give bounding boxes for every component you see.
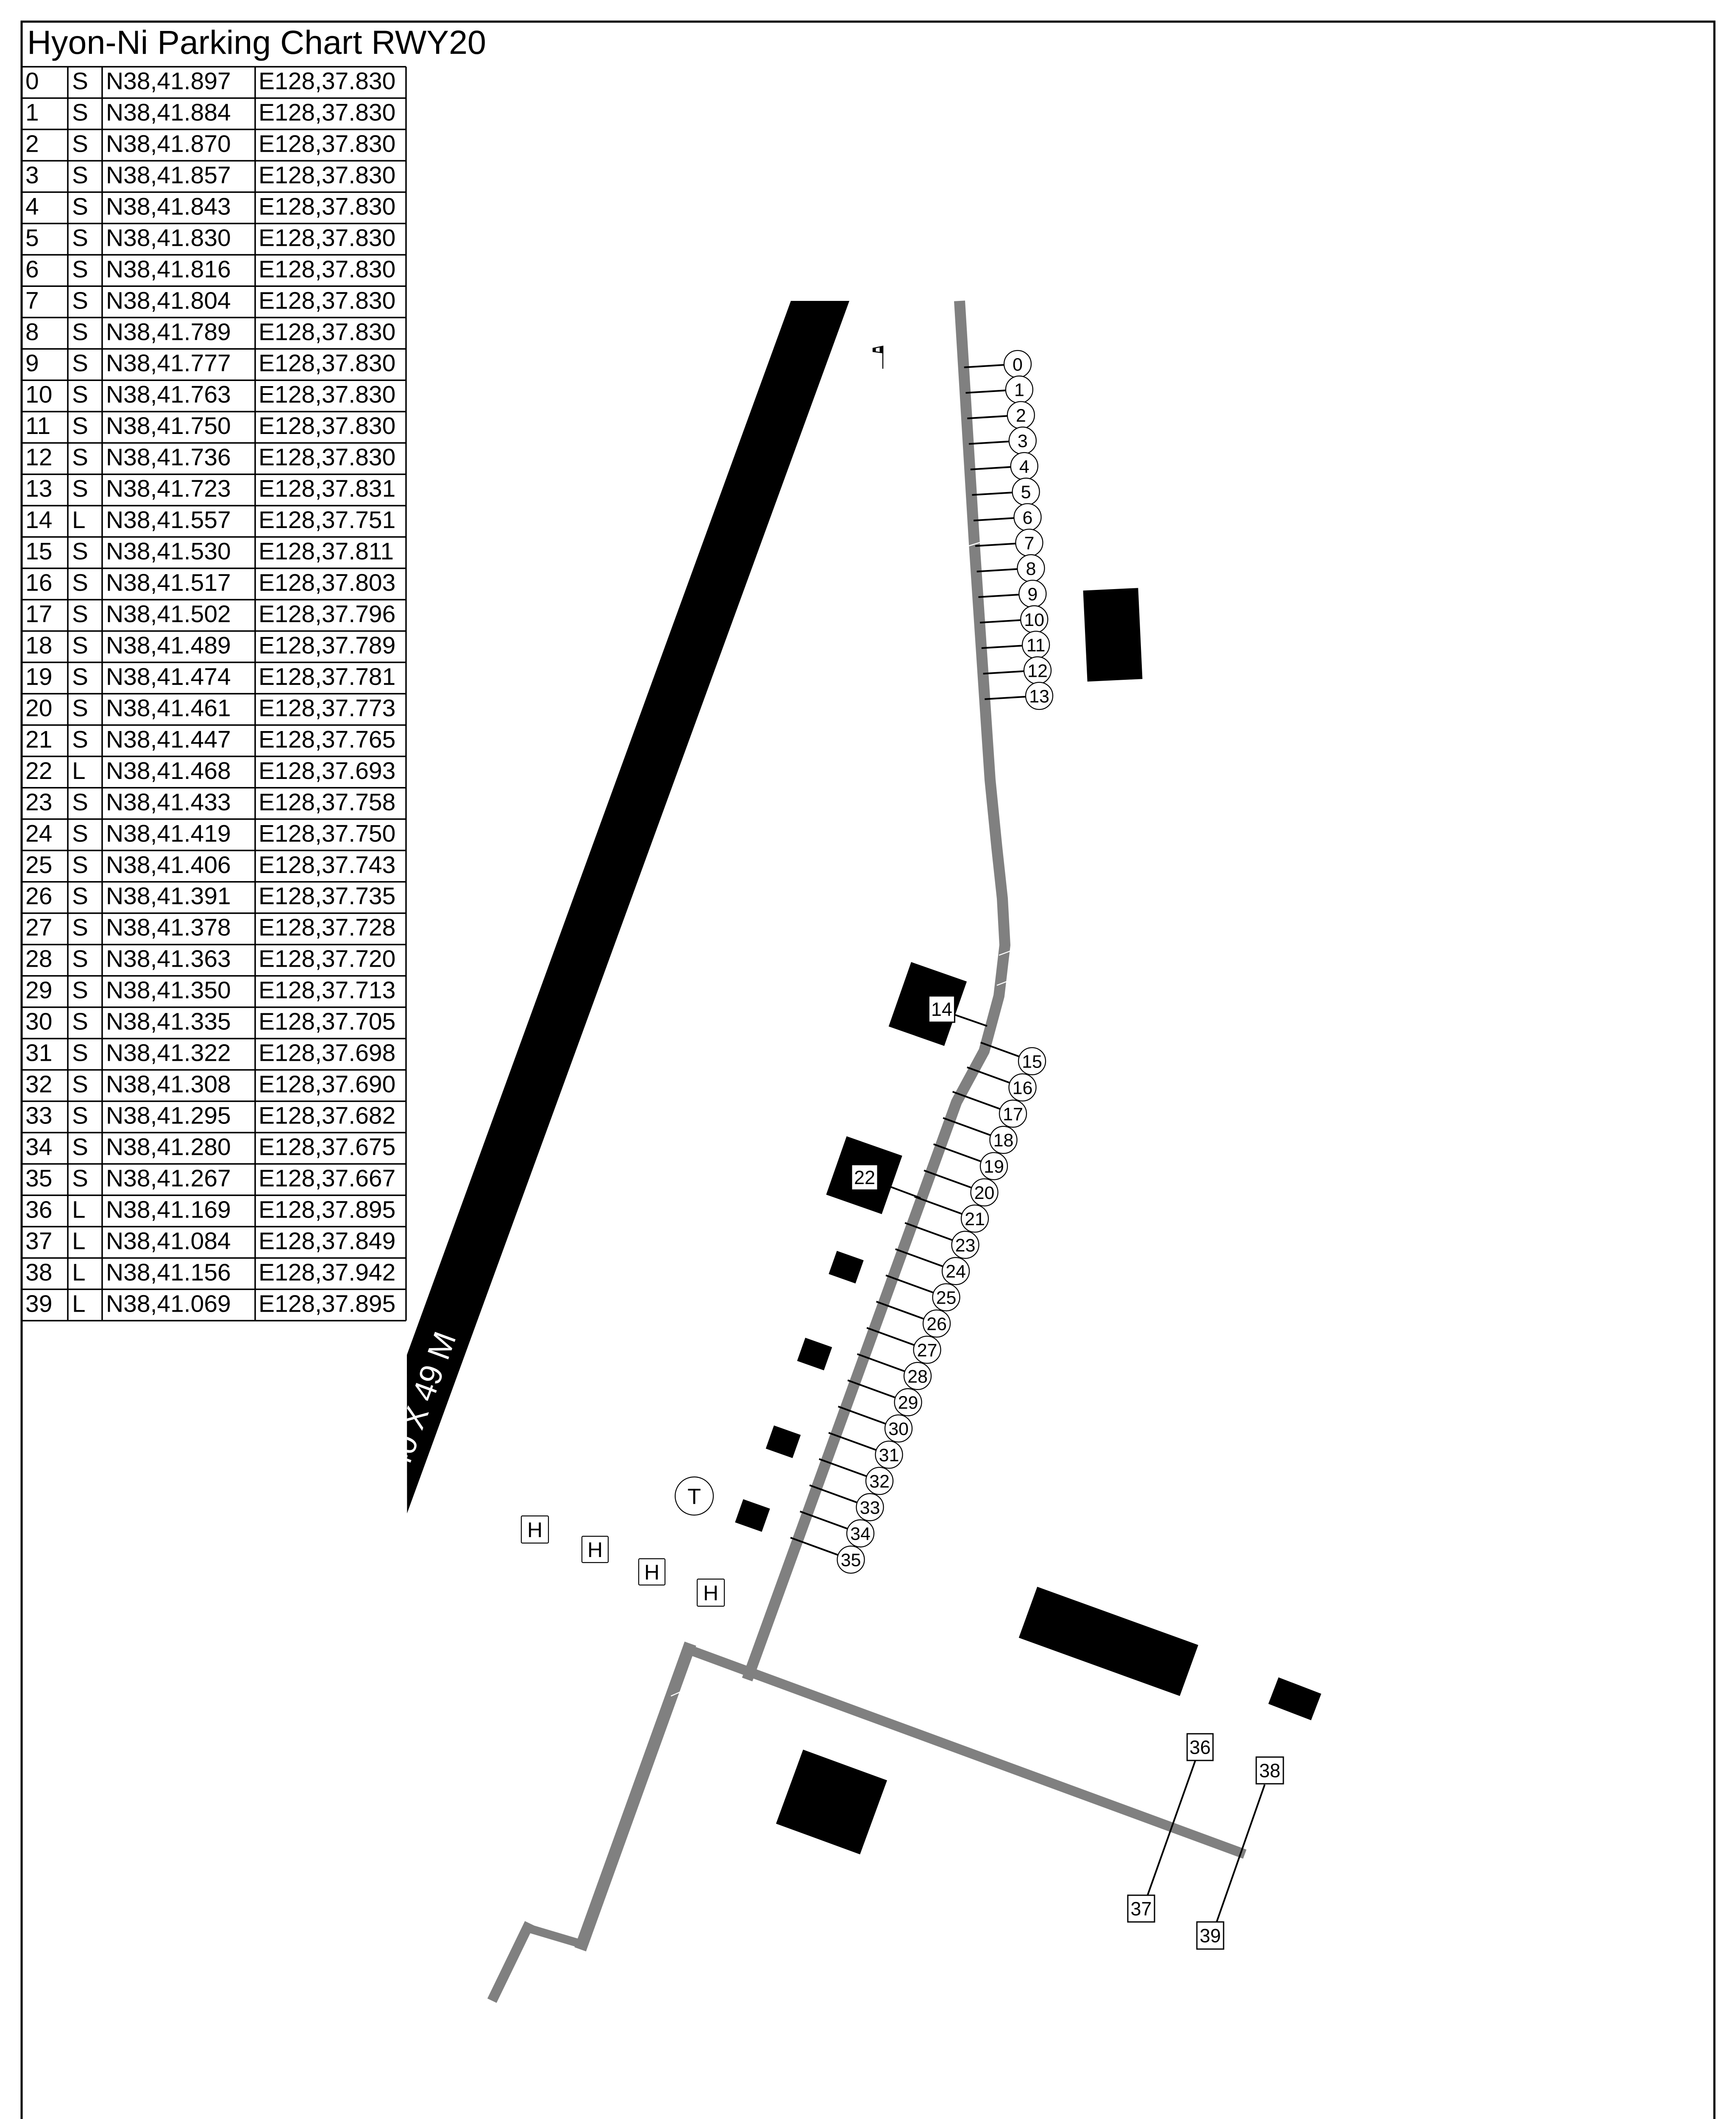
svg-text:L: L [72, 506, 86, 534]
svg-text:E128,37.789: E128,37.789 [259, 632, 395, 659]
svg-text:E128,37.698: E128,37.698 [259, 1040, 395, 1067]
svg-text:37: 37 [1130, 1898, 1152, 1920]
svg-text:13: 13 [25, 475, 52, 502]
svg-text:N38,41.843: N38,41.843 [106, 193, 231, 220]
svg-text:N38,41.857: N38,41.857 [106, 161, 231, 189]
svg-text:S: S [72, 1040, 88, 1067]
svg-text:S: S [72, 820, 88, 847]
svg-text:4: 4 [25, 193, 39, 220]
svg-text:12: 12 [1027, 661, 1048, 681]
svg-text:E128,37.682: E128,37.682 [259, 1102, 395, 1129]
svg-text:21: 21 [965, 1209, 985, 1229]
svg-text:E128,37.758: E128,37.758 [259, 789, 395, 816]
svg-text:25: 25 [25, 851, 52, 879]
svg-text:30: 30 [888, 1419, 909, 1439]
svg-text:36: 36 [25, 1196, 52, 1223]
svg-text:S: S [72, 1102, 88, 1129]
svg-text:N38,41.830: N38,41.830 [106, 224, 231, 251]
svg-text:4: 4 [1019, 456, 1029, 477]
svg-text:16: 16 [1013, 1078, 1033, 1098]
svg-text:E128,37.675: E128,37.675 [259, 1134, 395, 1161]
svg-text:N38,41.502: N38,41.502 [106, 601, 231, 628]
svg-text:S: S [72, 883, 88, 910]
svg-text:S: S [72, 1134, 88, 1161]
svg-text:S: S [72, 789, 88, 816]
svg-text:Hyon-Ni Parking Chart RWY20: Hyon-Ni Parking Chart RWY20 [27, 23, 486, 61]
svg-text:35: 35 [841, 1550, 861, 1571]
svg-text:25: 25 [936, 1288, 957, 1308]
svg-text:15: 15 [25, 538, 52, 565]
svg-text:24: 24 [946, 1262, 966, 1282]
svg-text:9: 9 [1027, 584, 1038, 605]
svg-text:8: 8 [1026, 559, 1036, 579]
svg-text:33: 33 [25, 1102, 52, 1129]
svg-text:11: 11 [1027, 635, 1046, 656]
svg-text:S: S [72, 1008, 88, 1035]
svg-text:27: 27 [25, 914, 52, 941]
svg-text:N38,41.461: N38,41.461 [106, 695, 231, 722]
svg-text:N38,41.557: N38,41.557 [106, 506, 231, 534]
svg-text:N38,41.530: N38,41.530 [106, 538, 231, 565]
svg-text:N38,41.156: N38,41.156 [106, 1259, 231, 1286]
svg-text:38: 38 [25, 1259, 52, 1286]
svg-text:N38,41.335: N38,41.335 [106, 1008, 231, 1035]
svg-text:E128,37.713: E128,37.713 [259, 977, 395, 1004]
svg-text:S: S [72, 350, 88, 377]
svg-text:S: S [72, 945, 88, 973]
svg-text:N38,41.804: N38,41.804 [106, 287, 231, 314]
svg-text:L: L [72, 1290, 86, 1317]
svg-text:S: S [72, 1071, 88, 1098]
svg-text:E128,37.735: E128,37.735 [259, 883, 395, 910]
svg-text:28: 28 [907, 1366, 928, 1387]
svg-text:13: 13 [1029, 687, 1049, 707]
svg-text:20: 20 [974, 1183, 995, 1203]
svg-text:N38,41.322: N38,41.322 [106, 1040, 231, 1067]
svg-text:39: 39 [25, 1290, 52, 1317]
svg-text:17: 17 [25, 601, 52, 628]
svg-text:E128,37.667: E128,37.667 [259, 1165, 395, 1192]
svg-text:N38,41.468: N38,41.468 [106, 757, 231, 784]
svg-text:L: L [72, 1196, 86, 1223]
svg-text:E128,37.811: E128,37.811 [259, 538, 394, 565]
svg-text:6: 6 [1023, 508, 1033, 528]
svg-text:L: L [72, 1259, 86, 1286]
svg-text:18: 18 [25, 632, 52, 659]
svg-text:N38,41.517: N38,41.517 [106, 569, 231, 596]
svg-text:E128,37.830: E128,37.830 [259, 99, 395, 126]
svg-text:S: S [72, 224, 88, 251]
svg-text:0: 0 [1013, 355, 1023, 375]
svg-text:8: 8 [25, 318, 39, 345]
svg-text:29: 29 [898, 1393, 918, 1413]
svg-text:23: 23 [955, 1235, 976, 1256]
svg-text:E128,37.830: E128,37.830 [259, 224, 395, 251]
svg-text:14: 14 [931, 998, 952, 1020]
svg-text:37: 37 [25, 1227, 52, 1254]
svg-text:35: 35 [25, 1165, 52, 1192]
svg-text:11: 11 [25, 412, 50, 439]
svg-text:7: 7 [25, 287, 39, 314]
svg-text:N38,41.378: N38,41.378 [106, 914, 231, 941]
svg-text:N38,41.267: N38,41.267 [106, 1165, 231, 1192]
svg-text:E128,37.830: E128,37.830 [259, 68, 395, 95]
svg-text:E128,37.690: E128,37.690 [259, 1071, 395, 1098]
svg-text:S: S [72, 68, 88, 95]
svg-text:S: S [72, 538, 88, 565]
svg-text:30: 30 [25, 1008, 52, 1035]
svg-text:17: 17 [1003, 1104, 1023, 1124]
svg-text:29: 29 [25, 977, 52, 1004]
svg-text:34: 34 [25, 1134, 52, 1161]
svg-text:18: 18 [993, 1130, 1014, 1151]
svg-text:N38,41.750: N38,41.750 [106, 412, 231, 439]
svg-text:N38,41.419: N38,41.419 [106, 820, 231, 847]
svg-text:12: 12 [25, 444, 52, 471]
svg-text:E128,37.895: E128,37.895 [259, 1196, 395, 1223]
svg-text:S: S [72, 475, 88, 502]
svg-text:S: S [72, 161, 88, 189]
svg-text:S: S [72, 695, 88, 722]
svg-text:2: 2 [25, 130, 39, 157]
svg-text:N38,41.884: N38,41.884 [106, 99, 231, 126]
svg-text:L: L [72, 757, 86, 784]
svg-text:28: 28 [25, 945, 52, 973]
svg-text:T: T [687, 1485, 701, 1509]
svg-text:E128,37.942: E128,37.942 [259, 1259, 395, 1286]
svg-text:6: 6 [25, 256, 39, 283]
svg-text:10: 10 [1024, 610, 1044, 630]
svg-text:E128,37.750: E128,37.750 [259, 820, 395, 847]
svg-text:32: 32 [25, 1071, 52, 1098]
svg-text:1: 1 [1014, 380, 1024, 400]
svg-text:S: S [72, 318, 88, 345]
svg-text:S: S [72, 193, 88, 220]
svg-text:19: 19 [984, 1157, 1004, 1177]
svg-text:N38,41.308: N38,41.308 [106, 1071, 231, 1098]
svg-text:H: H [703, 1581, 718, 1605]
svg-text:N38,41.789: N38,41.789 [106, 318, 231, 345]
svg-text:N38,41.897: N38,41.897 [106, 68, 231, 95]
svg-text:10: 10 [25, 381, 52, 408]
svg-text:14: 14 [25, 506, 52, 534]
svg-text:E128,37.830: E128,37.830 [259, 381, 395, 408]
svg-text:S: S [72, 287, 88, 314]
svg-text:5: 5 [1021, 482, 1031, 503]
svg-text:E128,37.693: E128,37.693 [259, 757, 395, 784]
svg-text:S: S [72, 914, 88, 941]
svg-text:E128,37.773: E128,37.773 [259, 695, 395, 722]
svg-text:N38,41.084: N38,41.084 [106, 1227, 231, 1254]
svg-text:S: S [72, 569, 88, 596]
svg-text:E128,37.830: E128,37.830 [259, 287, 395, 314]
svg-text:26: 26 [926, 1314, 947, 1335]
svg-text:22: 22 [854, 1167, 875, 1188]
svg-text:E128,37.830: E128,37.830 [259, 130, 395, 157]
svg-text:7: 7 [1024, 533, 1034, 553]
svg-text:9: 9 [25, 350, 39, 377]
svg-text:E128,37.830: E128,37.830 [259, 256, 395, 283]
svg-text:E128,37.720: E128,37.720 [259, 945, 395, 973]
svg-text:27: 27 [917, 1340, 938, 1360]
svg-text:N38,41.474: N38,41.474 [106, 663, 231, 690]
svg-text:H: H [527, 1518, 542, 1542]
svg-text:E128,37.751: E128,37.751 [259, 506, 395, 534]
svg-text:E128,37.830: E128,37.830 [259, 161, 395, 189]
svg-text:32: 32 [869, 1471, 890, 1492]
svg-text:E128,37.796: E128,37.796 [259, 601, 395, 628]
svg-text:S: S [72, 601, 88, 628]
svg-text:S: S [72, 632, 88, 659]
svg-text:E128,37.830: E128,37.830 [259, 412, 395, 439]
svg-text:23: 23 [25, 789, 52, 816]
svg-text:5: 5 [25, 224, 39, 251]
svg-text:21: 21 [25, 726, 52, 753]
svg-text:33: 33 [860, 1498, 880, 1518]
svg-text:E128,37.830: E128,37.830 [259, 193, 395, 220]
svg-text:E128,37.831: E128,37.831 [259, 475, 395, 502]
svg-text:N38,41.489: N38,41.489 [106, 632, 231, 659]
svg-text:31: 31 [879, 1445, 899, 1466]
svg-text:36: 36 [1189, 1737, 1210, 1758]
svg-text:1: 1 [25, 99, 39, 126]
svg-text:H: H [587, 1538, 603, 1562]
svg-text:19: 19 [25, 663, 52, 690]
svg-text:22: 22 [25, 757, 52, 784]
svg-text:N38,41.069: N38,41.069 [106, 1290, 231, 1317]
svg-text:S: S [72, 130, 88, 157]
svg-text:0: 0 [25, 68, 39, 95]
svg-text:N38,41.763: N38,41.763 [106, 381, 231, 408]
svg-text:39: 39 [1199, 1925, 1221, 1947]
svg-text:S: S [72, 663, 88, 690]
svg-text:E128,37.728: E128,37.728 [259, 914, 395, 941]
svg-text:E128,37.765: E128,37.765 [259, 726, 395, 753]
svg-text:S: S [72, 412, 88, 439]
svg-text:L: L [72, 1227, 86, 1254]
svg-text:E128,37.830: E128,37.830 [259, 350, 395, 377]
svg-text:S: S [72, 1165, 88, 1192]
svg-text:N38,41.280: N38,41.280 [106, 1134, 231, 1161]
svg-text:38: 38 [1259, 1760, 1280, 1782]
svg-text:E128,37.743: E128,37.743 [259, 851, 395, 879]
svg-text:31: 31 [25, 1040, 52, 1067]
svg-text:15: 15 [1022, 1052, 1042, 1072]
svg-text:E128,37.830: E128,37.830 [259, 444, 395, 471]
svg-text:S: S [72, 851, 88, 879]
svg-text:N38,41.723: N38,41.723 [106, 475, 231, 502]
svg-text:E128,37.705: E128,37.705 [259, 1008, 395, 1035]
svg-text:S: S [72, 977, 88, 1004]
svg-text:N38,41.736: N38,41.736 [106, 444, 231, 471]
svg-text:N38,41.169: N38,41.169 [106, 1196, 231, 1223]
svg-text:E128,37.803: E128,37.803 [259, 569, 395, 596]
svg-text:N38,41.433: N38,41.433 [106, 789, 231, 816]
svg-text:N38,41.870: N38,41.870 [106, 130, 231, 157]
svg-text:N38,41.391: N38,41.391 [106, 883, 231, 910]
svg-text:N38,41.363: N38,41.363 [106, 945, 231, 973]
svg-text:N38,41.447: N38,41.447 [106, 726, 231, 753]
svg-text:H: H [644, 1560, 659, 1584]
svg-text:26: 26 [25, 883, 52, 910]
svg-text:16: 16 [25, 569, 52, 596]
svg-text:E128,37.781: E128,37.781 [259, 663, 395, 690]
svg-text:S: S [72, 726, 88, 753]
svg-text:E128,37.849: E128,37.849 [259, 1227, 395, 1254]
svg-text:S: S [72, 99, 88, 126]
svg-text:N38,41.777: N38,41.777 [106, 350, 231, 377]
svg-text:N38,41.295: N38,41.295 [106, 1102, 231, 1129]
svg-text:2: 2 [1016, 406, 1026, 426]
svg-text:20: 20 [25, 695, 52, 722]
svg-text:E128,37.830: E128,37.830 [259, 318, 395, 345]
svg-text:S: S [72, 444, 88, 471]
svg-text:3: 3 [25, 161, 39, 189]
svg-text:34: 34 [850, 1524, 871, 1544]
svg-text:24: 24 [25, 820, 52, 847]
svg-text:3: 3 [1018, 431, 1028, 451]
svg-text:S: S [72, 381, 88, 408]
svg-text:N38,41.350: N38,41.350 [106, 977, 231, 1004]
svg-text:N38,41.816: N38,41.816 [106, 256, 231, 283]
svg-text:S: S [72, 256, 88, 283]
svg-text:E128,37.895: E128,37.895 [259, 1290, 395, 1317]
svg-text:N38,41.406: N38,41.406 [106, 851, 231, 879]
